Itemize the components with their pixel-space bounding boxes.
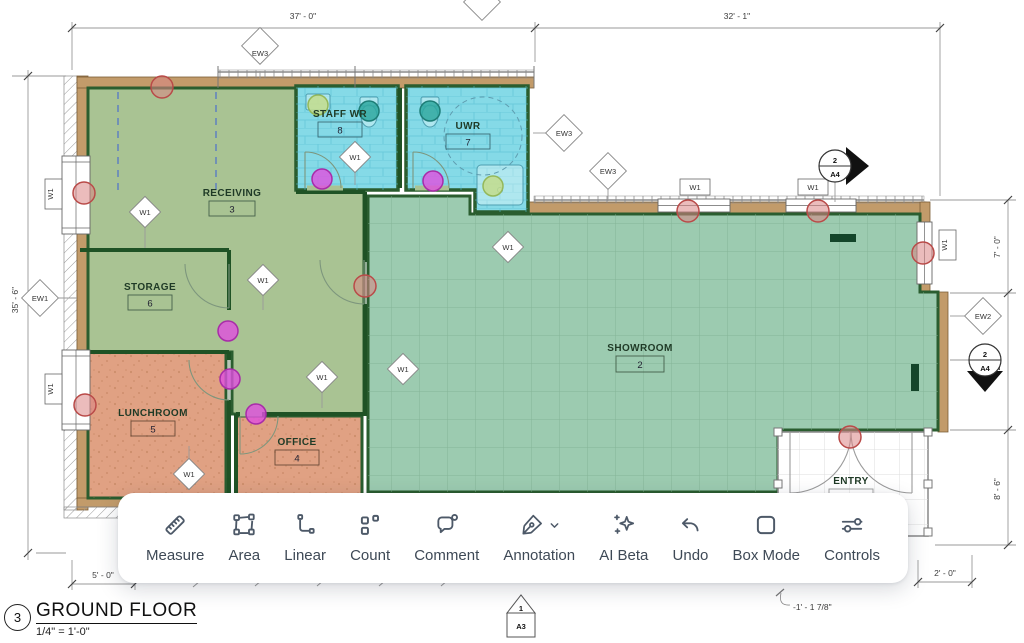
tag-w1: W1 bbox=[349, 153, 360, 162]
tag-w1: W1 bbox=[183, 470, 194, 479]
area-button[interactable]: Area bbox=[228, 512, 260, 564]
polyline-icon bbox=[292, 512, 318, 538]
count-marker-red bbox=[151, 76, 173, 98]
tool-label: Linear bbox=[284, 547, 326, 564]
svg-text:A4: A4 bbox=[830, 170, 840, 179]
tool-label: Undo bbox=[673, 547, 709, 564]
tool-label: Box Mode bbox=[732, 547, 800, 564]
plan-viewer-app: 37' - 0" 32' - 1" 35' - 6" 7' - 0" 12' -… bbox=[0, 0, 1024, 643]
box-icon bbox=[753, 512, 779, 538]
count-marker-teal bbox=[420, 101, 440, 121]
linear-button[interactable]: Linear bbox=[284, 512, 326, 564]
tag-w1: W1 bbox=[257, 276, 268, 285]
count-marker-red bbox=[807, 200, 829, 222]
dim-right-upper: 7' - 0" bbox=[992, 236, 1002, 258]
svg-text:2: 2 bbox=[833, 156, 837, 165]
tool-label: Annotation bbox=[503, 547, 575, 564]
measure-button[interactable]: Measure bbox=[146, 512, 204, 564]
sheet-title-block: 3 GROUND FLOOR 1/4" = 1'-0" bbox=[4, 600, 197, 638]
sheet-title: GROUND FLOOR bbox=[36, 600, 197, 624]
svg-text:4: 4 bbox=[294, 454, 299, 465]
svg-text:RECEIVING: RECEIVING bbox=[203, 188, 262, 199]
ai-beta-button[interactable]: AI Beta bbox=[599, 512, 648, 564]
dim-bottom-right: 2' - 0" bbox=[934, 568, 956, 578]
wall-tag-w1: W1 bbox=[46, 188, 55, 199]
pen-icon bbox=[519, 512, 545, 538]
count-squares-icon bbox=[357, 512, 383, 538]
tag-ew3: EW3 bbox=[252, 49, 268, 58]
count-marker-magenta bbox=[220, 369, 240, 389]
svg-text:8: 8 bbox=[337, 126, 342, 137]
svg-text:1: 1 bbox=[519, 604, 523, 613]
sheet-number-bubble: 3 bbox=[4, 604, 31, 631]
svg-text:ENTRY: ENTRY bbox=[833, 476, 869, 487]
svg-text:STORAGE: STORAGE bbox=[124, 282, 176, 293]
svg-text:2: 2 bbox=[637, 360, 642, 371]
svg-text:SHOWROOM: SHOWROOM bbox=[607, 343, 672, 354]
annotation-button[interactable]: Annotation bbox=[503, 512, 575, 564]
room-fills bbox=[88, 86, 938, 536]
sliders-icon bbox=[839, 512, 865, 538]
area-polygon-icon bbox=[231, 512, 257, 538]
dim-right-lower: 8' - 6" bbox=[992, 478, 1002, 500]
svg-text:5: 5 bbox=[150, 425, 155, 436]
count-marker-red bbox=[677, 200, 699, 222]
tool-label: Comment bbox=[414, 547, 479, 564]
tool-label: Controls bbox=[824, 547, 880, 564]
chevron-down-icon bbox=[549, 520, 560, 531]
tool-label: Count bbox=[350, 547, 390, 564]
comment-button[interactable]: Comment bbox=[414, 512, 479, 564]
tool-label: Area bbox=[228, 547, 260, 564]
count-marker-magenta bbox=[218, 321, 238, 341]
ruler-icon bbox=[162, 512, 188, 538]
tag-w1: W1 bbox=[316, 373, 327, 382]
svg-text:2: 2 bbox=[983, 350, 987, 359]
count-marker-red bbox=[74, 394, 96, 416]
wall-tag-w1: W1 bbox=[807, 183, 818, 192]
elevation-marker[interactable]: 1 A3 bbox=[507, 595, 535, 637]
section-marker-down[interactable]: 2 A4 bbox=[950, 344, 1003, 392]
measurement-toolbar: Measure Area Linear Count bbox=[118, 493, 908, 583]
svg-text:A3: A3 bbox=[516, 622, 526, 631]
dim-left: 35' - 6" bbox=[10, 287, 20, 313]
count-marker-red bbox=[839, 426, 861, 448]
svg-text:LUNCHROOM: LUNCHROOM bbox=[118, 408, 188, 419]
count-marker-magenta bbox=[246, 404, 266, 424]
count-marker-red bbox=[912, 242, 934, 264]
count-marker-magenta bbox=[423, 171, 443, 191]
dim-entry-offset: -1' - 1 7/8" bbox=[793, 602, 832, 612]
count-marker-green bbox=[483, 176, 503, 196]
dim-top-right: 32' - 1" bbox=[724, 11, 750, 21]
svg-text:6: 6 bbox=[147, 299, 152, 310]
sheet-scale: 1/4" = 1'-0" bbox=[36, 626, 197, 638]
count-marker-red bbox=[354, 275, 376, 297]
wall-tag-w1: W1 bbox=[46, 383, 55, 394]
wall-tag-w1: W1 bbox=[689, 183, 700, 192]
comment-bubble-icon bbox=[434, 512, 460, 538]
tool-label: AI Beta bbox=[599, 547, 648, 564]
box-mode-button[interactable]: Box Mode bbox=[732, 512, 800, 564]
tag-ew2: EW2 bbox=[975, 312, 991, 321]
svg-text:A4: A4 bbox=[980, 364, 990, 373]
tag-ew3: EW3 bbox=[600, 167, 616, 176]
count-marker-magenta bbox=[312, 169, 332, 189]
tag-w1: W1 bbox=[502, 243, 513, 252]
sparkles-icon bbox=[611, 512, 637, 538]
controls-button[interactable]: Controls bbox=[824, 512, 880, 564]
svg-text:OFFICE: OFFICE bbox=[277, 437, 316, 448]
tag-w1: W1 bbox=[139, 208, 150, 217]
wall-tag-w1: W1 bbox=[940, 239, 949, 250]
svg-text:3: 3 bbox=[229, 205, 234, 216]
tag-w1: W1 bbox=[397, 365, 408, 374]
dim-top-left: 37' - 0" bbox=[290, 11, 316, 21]
tag-ew3: EW3 bbox=[556, 129, 572, 138]
count-marker-red bbox=[73, 182, 95, 204]
svg-text:STAFF WR: STAFF WR bbox=[313, 109, 367, 120]
svg-text:UWR: UWR bbox=[455, 121, 480, 132]
tool-label: Measure bbox=[146, 547, 204, 564]
svg-text:7: 7 bbox=[465, 138, 470, 149]
dim-bottom-left: 5' - 0" bbox=[92, 570, 114, 580]
undo-arrow-icon bbox=[677, 512, 703, 538]
tag-ew1: EW1 bbox=[32, 294, 48, 303]
undo-button[interactable]: Undo bbox=[673, 512, 709, 564]
count-button[interactable]: Count bbox=[350, 512, 390, 564]
